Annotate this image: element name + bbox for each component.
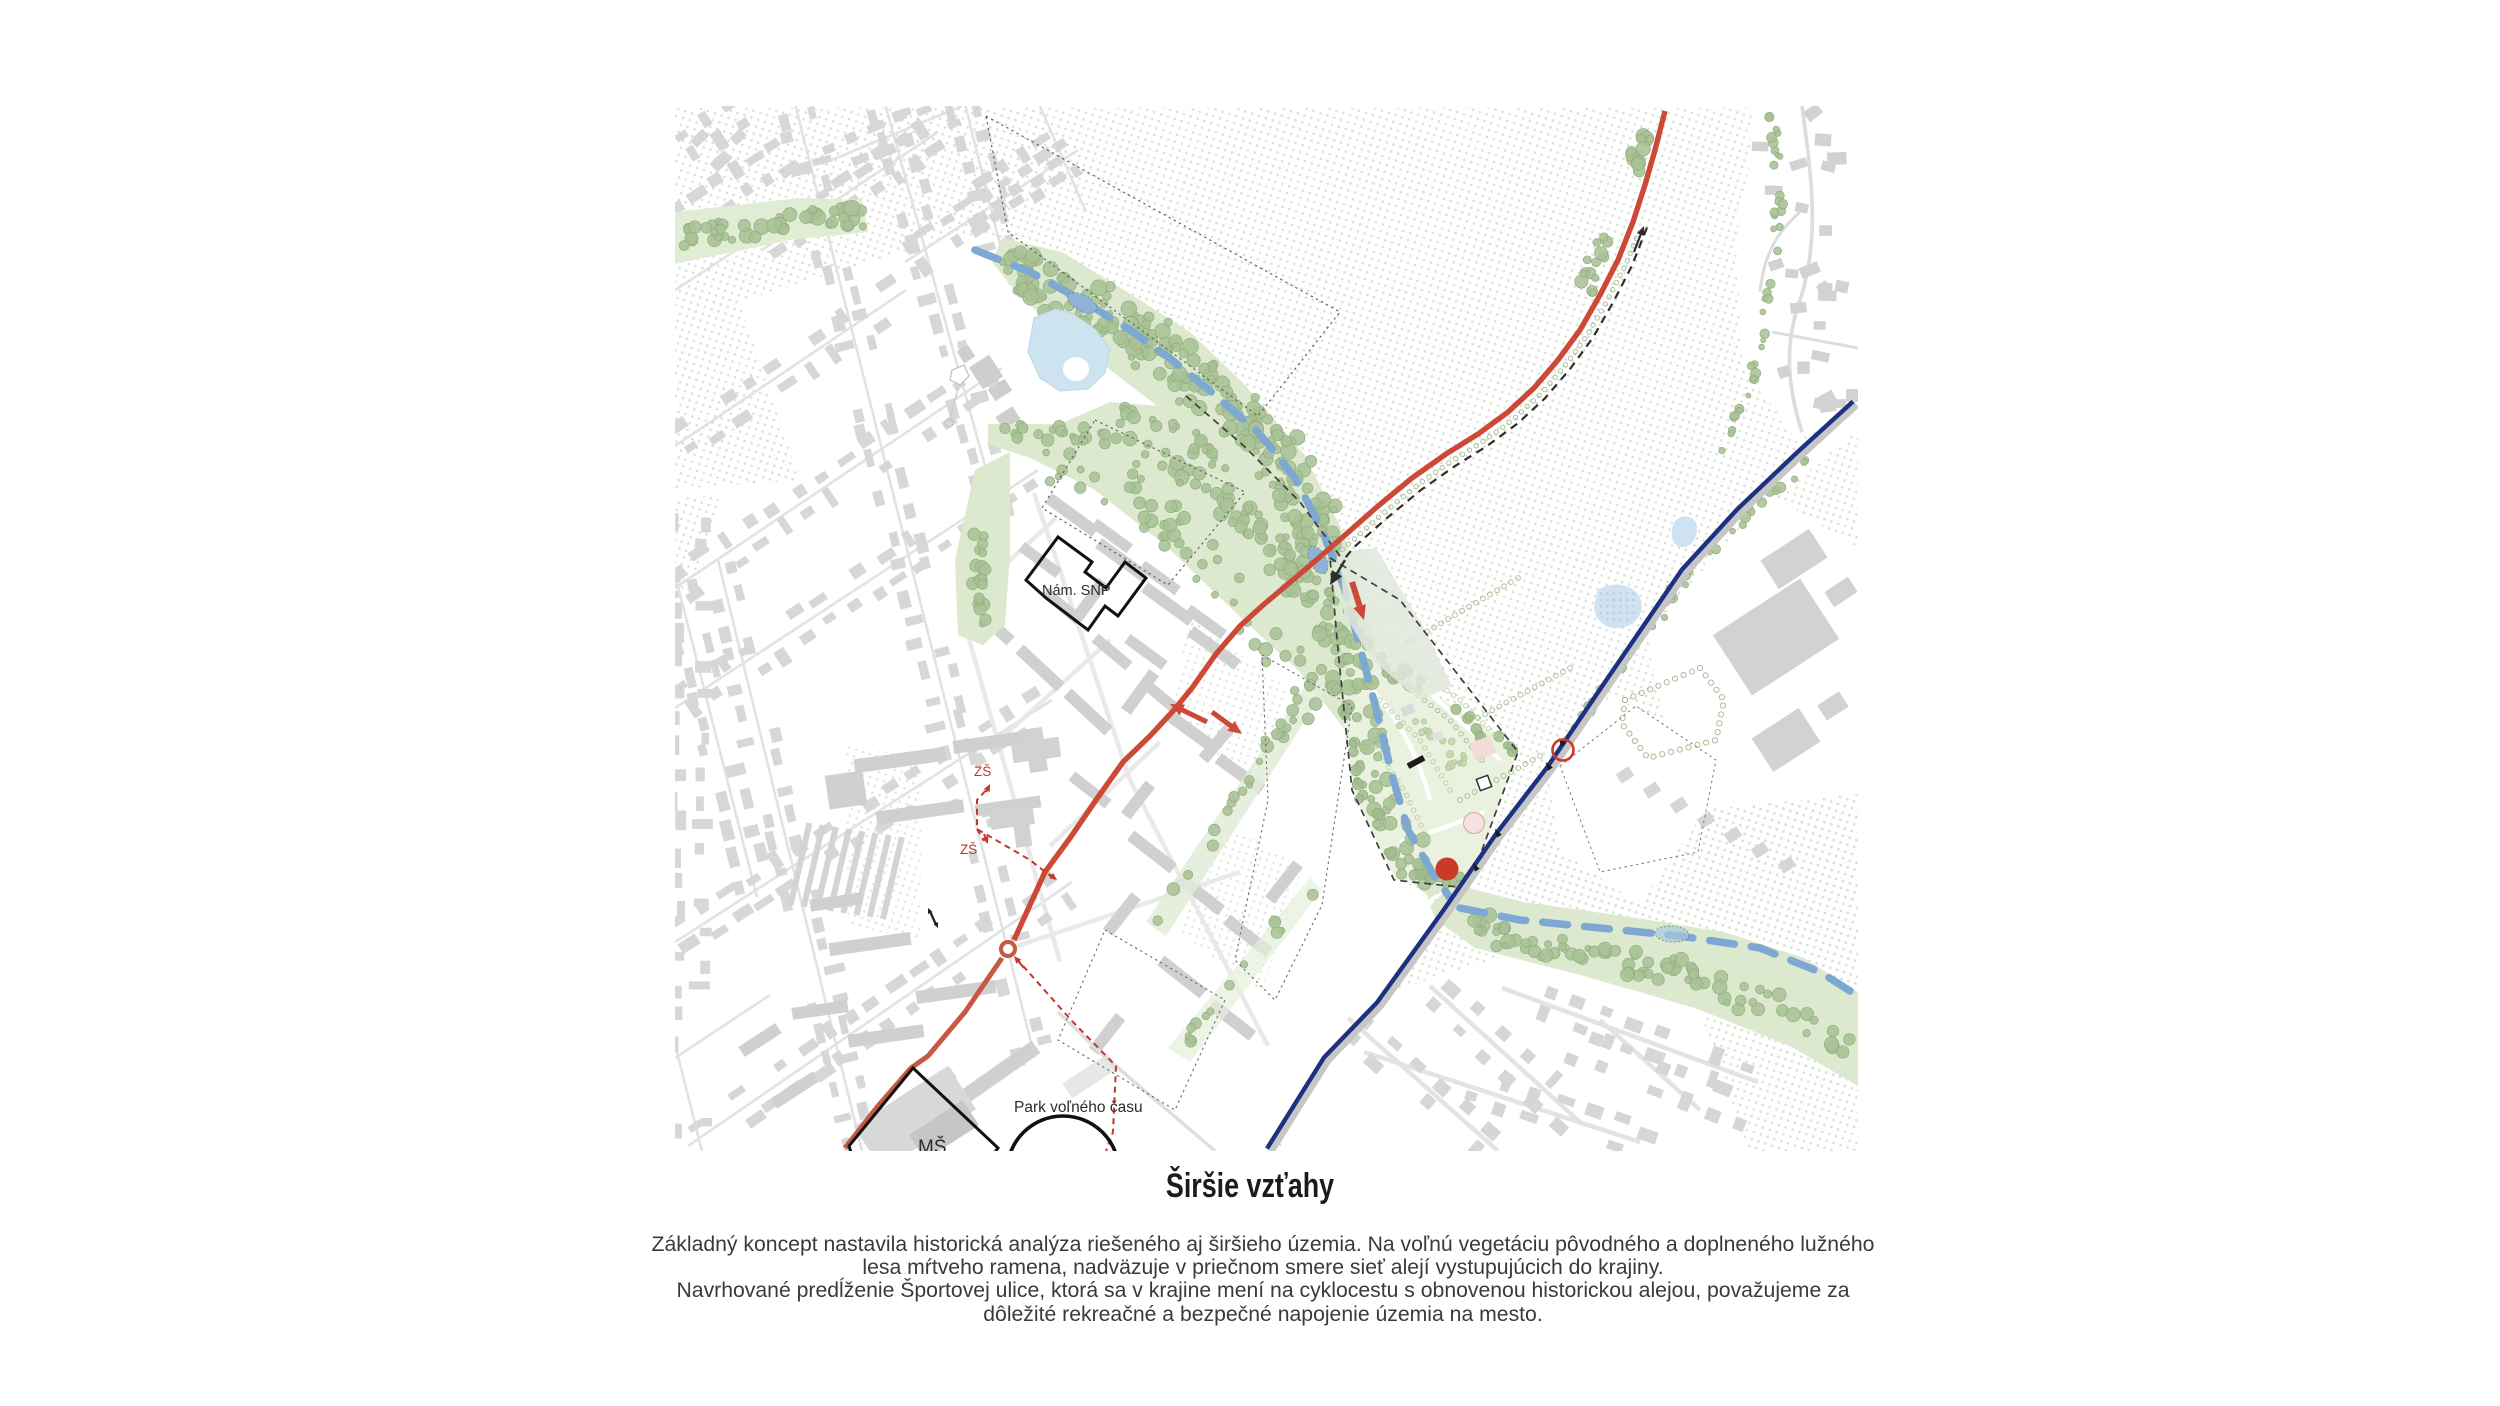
svg-text:ZŠ: ZŠ	[960, 842, 977, 857]
svg-text:MŠ: MŠ	[918, 1136, 947, 1158]
svg-text:ZŠ: ZŠ	[974, 764, 991, 779]
svg-text:Park voľného času: Park voľného času	[1014, 1099, 1143, 1116]
svg-text:Nám. SNP: Nám. SNP	[1042, 583, 1111, 599]
